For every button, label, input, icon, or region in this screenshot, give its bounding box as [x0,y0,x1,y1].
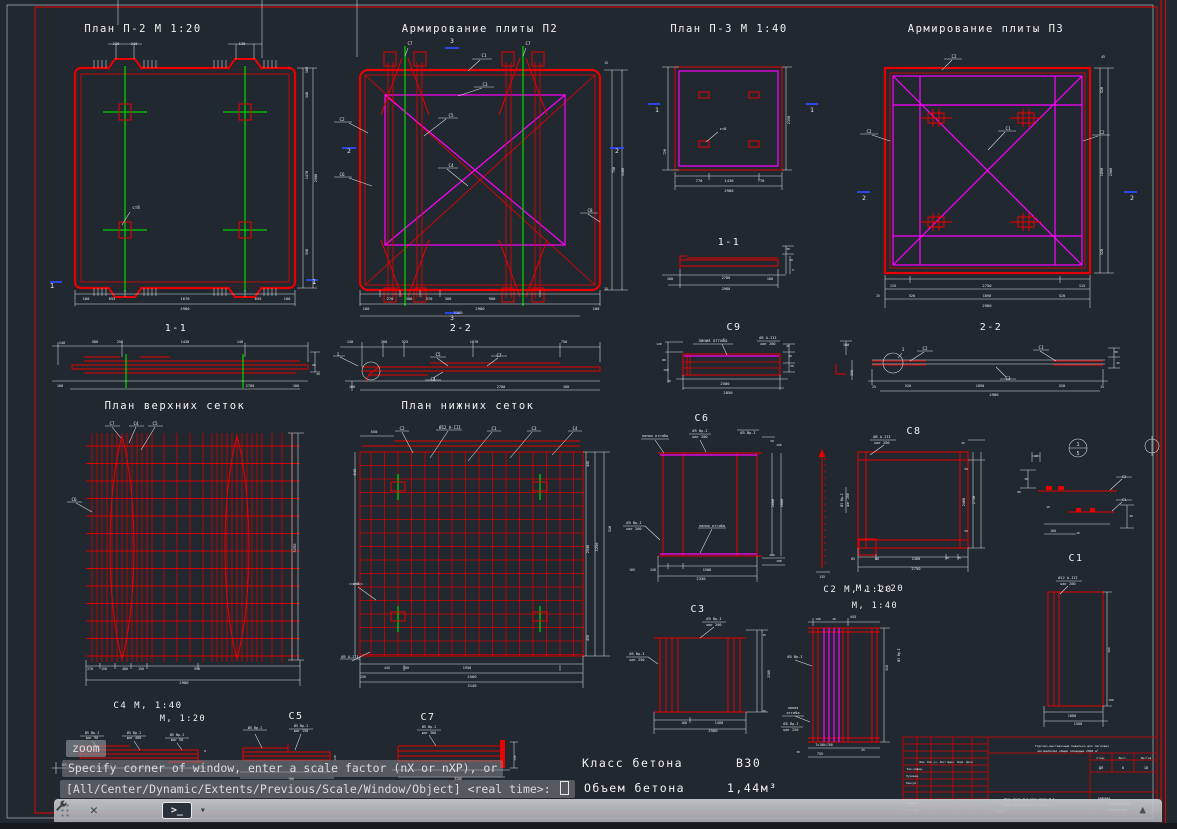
dim-label: 1430 [181,340,189,344]
dim-label: C3 [1005,376,1011,381]
section-2-2-p3: 2-2 [836,322,1120,391]
concrete-volume-label: Объем бетона [584,781,685,795]
dim-label: 2750 [982,283,992,288]
dim-label: 300 [406,296,414,301]
dim-label: C1 [491,426,497,431]
dim-label: 25 [872,385,876,389]
dim-label: 2780 [246,384,254,388]
bottom-strip [0,823,1177,829]
dim-label: 140 [237,340,243,344]
dim-label: 655 [255,296,262,301]
dim-label: 40 [832,617,836,621]
dim-label: 520 [1059,384,1065,388]
expand-triangle-icon[interactable]: ▲ [1139,803,1146,816]
dim-label: 100 [1050,529,1056,533]
dim-label: C4 [448,163,454,168]
dim-label: 150 [663,368,669,372]
dim-label: 15 [1046,505,1050,509]
title-plan-p3: План П-3 М 1:40 [670,23,787,35]
wrench-glyph [54,799,68,813]
dim-label: шаг 150 [294,729,308,733]
dim-label: 250 [117,340,123,344]
title-c2-scale: М, 1:40 [852,601,898,611]
dim-label: 8 [204,749,206,753]
dim-label: 2380 [767,670,771,678]
dim-label: 3180 [453,310,463,315]
dim-label: 50 [964,529,968,533]
dim-label: 550 [371,429,379,434]
dim-label: C1 [1038,345,1044,350]
dim-label: 2980 [982,303,992,308]
dim-label: C2 [399,426,405,431]
title-c5: C5 [288,711,303,722]
concrete-volume-value: 1,44м³ [727,781,778,795]
dim-label: Ø5 А-III [341,654,358,659]
dim-label: Ø5 Вр-I [896,648,901,662]
dim-label: 2560 [708,728,718,733]
dim-label: 950 [194,667,200,671]
dim-label: C6 [71,497,77,502]
dim-label: 2800 [780,499,784,507]
dim-label: 100 [57,384,63,388]
dim-label: Ø5 Вр-I [787,654,802,659]
dim-label: 2980 [475,306,485,311]
dim-label: 25 [961,441,965,445]
dim-label: 10 [1034,454,1038,458]
dim-label: 2 [615,147,619,155]
dim-label: 2560 [467,674,477,679]
dim-label: 50 [770,439,774,443]
dim-label: 2750 [911,566,921,571]
dim-label: 100 [293,384,299,388]
dim-label: 640 [352,468,357,476]
sheets-header: Листов [1141,756,1152,760]
dim-label: 2850 [723,390,733,395]
dim-label: 15 [604,287,608,291]
dim-label: 445 [850,615,856,619]
dim-label: шаг 300 [422,731,436,735]
dim-label: C1 [1005,126,1011,131]
dim-label: 115 [1079,284,1085,288]
dim-label: шаг 200 [706,623,721,627]
command-input-line[interactable]: [All/Center/Dynamic/Extents/Previous/Sca… [60,780,575,798]
dim-label: 2980 [722,287,730,291]
dim-label: ст8 [132,205,140,210]
dim-label: шаг 200 [626,527,641,531]
dim-label: 7х100=700 [815,743,832,747]
dim-label: 2980 [724,188,734,193]
dim-label: 100 [363,306,371,311]
dim-label: 135 [819,575,825,579]
close-icon[interactable]: ✕ [90,801,98,821]
dim-label: 2980 [989,392,999,397]
dim-label: 120 [656,342,662,346]
command-prompt-text: Specify corner of window, enter a scale … [68,761,497,775]
dim-label: 85 [851,557,855,561]
dim-label: C7 [496,353,502,358]
dim-label: 80 [662,358,666,362]
title-c2: C2 М, 1:20 [823,585,892,595]
dim-label: 100 [667,277,673,281]
dim-label: Ø5 Вр-I [783,721,798,726]
dim-label: 370 [426,296,434,301]
dim-label: 520 [885,665,889,671]
dim-label: 30 [316,372,320,376]
dim-label: C5 [448,113,454,118]
dim-label: 1430 [724,178,734,183]
dim-label: 25 [957,556,961,560]
dim-label: 100 [776,443,782,447]
dim-label: 655 [109,296,116,301]
dim-label: 45 [786,344,790,348]
dim-label: 450 [586,635,590,641]
dim-label: 1400 [715,721,723,725]
title-c4-scale1: C4 М, 1:40 [113,701,182,711]
title-mesh-lower: План нижних сеток [402,400,535,412]
dim-label: 5 [792,268,794,272]
dim-label: 30 [796,750,800,754]
dim-label: 150 [138,667,144,671]
dim-label: 2780 [722,276,730,280]
dim-label: 2980 [179,680,189,685]
dim-label: 520 [1100,249,1104,255]
dim-label: 100 [1108,698,1114,702]
dim-label: шаг 200 [874,441,889,445]
dim-label: 3250 [292,543,297,553]
section-1-1-p2: 1-1 [52,323,320,389]
dim-label: 2330 [696,576,706,581]
dim-label: Ø5 Вр-I [422,724,436,729]
detail-c6: C6 [623,413,830,582]
title-sec22-p3: 2-2 [980,322,1003,333]
dim-label: 100 [815,617,821,621]
detail-c9: C9 [665,322,795,390]
dim-label: 1670 [470,340,478,344]
dim-label: шаг 200 [1060,582,1075,586]
dim-label: 50 [790,364,794,368]
dim-label: 30 [786,247,790,251]
title-sec22-mid: 2-2 [450,323,473,334]
dim-label: 520 [905,384,911,388]
dim-label: 1500 [703,568,711,572]
title-sec11-left: 1-1 [165,323,188,334]
dim-label: 250 [850,370,854,376]
dim-label: Ø12 А-III [1058,575,1077,580]
dim-label: 80 [312,363,316,367]
dim-label: 580 [92,340,98,344]
dim-label: 2980 [314,174,318,182]
detail-c3: C3 [626,604,768,734]
dim-label: Ø8 А-III [873,434,890,439]
dim-label: 45 [1101,55,1105,59]
dim-label: 3180 [621,168,625,176]
dim-label: C4 [572,426,578,431]
dim-label: 2 [1130,194,1134,202]
dim-label: 1890 [976,384,984,388]
dim-label: 100 [284,296,292,301]
dim-label: 520 [1100,87,1104,93]
dropdown-arrow-icon[interactable]: ▾ [200,805,206,816]
dim-label: 770 [758,178,766,183]
cad-application-window: План П-2 М 1:20 Армирование плиты П2 Пла… [0,0,1177,829]
dim-label: 100 [349,385,355,389]
dim-label: Ø5 А-III [759,335,776,340]
dim-label: 100 [83,296,91,301]
dim-label: 30 [1129,514,1133,518]
dim-label: шаг 200 [846,493,850,507]
dim-label: 50 [789,258,793,262]
dim-label: C2 [339,117,345,122]
dim-label: шаг 250 [783,728,798,732]
dim-label: C3 [482,82,488,87]
title-sec11-p3: 1-1 [718,237,741,248]
dim-label: линия отгиба [699,523,725,528]
dim-label: 200 [403,666,409,670]
dim-label: 250 [360,675,366,679]
dim-label: 1890 [983,294,991,298]
title-c4-scale2: М, 1:20 [160,714,206,724]
dim-label: C7 [525,41,531,46]
dim-label: 15 [1100,385,1104,389]
dim-label: 50 [945,556,949,560]
dim-label: шаг 200 [760,342,775,346]
dim-label: 240 [131,41,139,46]
dim-label: ст8 [353,581,361,586]
dim-label: C2 [1099,130,1105,135]
dim-label: 105 [629,568,635,572]
dim-label: 3 [450,37,454,45]
dim-label: 15 [604,61,608,65]
title-c3: C3 [690,604,705,615]
command-history-entry: zoom [66,740,106,757]
sheet-value: 6 [1122,766,1124,770]
dim-label: Ø5 Вр-I [626,520,641,525]
stage-header: Стад. [1096,756,1105,760]
dim-label: 300 [1107,647,1111,653]
dim-label: 50 [667,379,671,383]
title-arm-p2: Армирование плиты П2 [402,23,558,35]
dim-label: 1 [902,347,905,353]
dim-label: 270 [387,296,395,301]
dim-label: 720 [663,149,667,155]
dim-label: 30 [1024,477,1028,481]
dim-label: 525 [402,340,408,344]
dim-label: 200 [381,340,387,344]
dim-label: 45 [1116,361,1120,365]
dim-label: Руковод. [906,774,920,778]
stage-value: ДП [1099,766,1103,770]
dim-label: 250 [769,553,775,557]
dim-label: 3140 [467,683,477,688]
dim-label: 150 [101,667,107,671]
project-title-line2: автомобилей общей площадью 2000 м² [1037,748,1099,753]
dim-label: 5 [1076,451,1079,457]
detail-node-1-5 [1020,436,1159,534]
dim-label: 1890 [1100,168,1104,176]
title-c1: C1 [1068,553,1083,564]
dim-label: 1080 [1068,714,1076,718]
command-window-icon[interactable]: >_ [162,802,192,819]
dim-label: 350 [305,249,309,255]
dim-label: 25 [861,748,865,752]
dim-label: 25 [876,294,880,298]
dim-label: ст8 [720,126,728,131]
dim-label: 2400 [912,557,920,561]
plan-p2-drawing: План П-2 М 1:20 [50,23,318,306]
dim-label: C4 [133,421,139,426]
dim-label: 100 [767,277,773,281]
dim-label: 270 [87,667,93,671]
dim-label: 2600 [771,499,775,507]
dim-label: 750 [561,340,567,344]
dim-label: C2 [951,54,957,59]
arm-p3-drawing: Армирование плиты П3 [857,23,1137,308]
dim-label: 15 [762,633,766,637]
dim-label: C8 [587,208,593,213]
title-plan-p2: План П-2 М 1:20 [84,23,201,35]
dim-label: C7 [407,41,413,46]
dim-label: C5 [152,421,158,426]
dim-label: 2540 [586,545,590,553]
dim-label: C2 [866,129,872,134]
dim-label: C7 [109,421,115,426]
dim-label: Ø5 Вр-I [170,732,184,737]
title-arm-p3: Армирование плиты П3 [908,23,1064,35]
dim-label: 520 [909,294,915,298]
dim-label: C3 [531,426,537,431]
dim-label: 510 [608,526,612,532]
dim-label: 1950 [463,666,471,670]
command-options-text: [All/Center/Dynamic/Extents/Previous/Sca… [66,782,558,796]
dim-label: 520 [1059,294,1065,298]
dim-label: 340 [305,92,309,98]
dim-label: 40 [788,354,792,358]
dim-label: 3 [450,314,454,322]
dim-label: линия [788,706,799,710]
command-prompt-line: Specify corner of window, enter a scale … [62,760,503,777]
dim-label: линия отгиба [642,433,668,438]
dim-label: 115 [890,284,896,288]
dim-label: Ø5 Вр-I [839,493,844,507]
dim-label: 80 [875,557,879,561]
title-c6: C6 [694,413,709,424]
dim-label: 100 [843,343,849,347]
dim-label: линия отгиба [699,338,728,343]
dim-label: Ø5 Вр-I [85,730,99,735]
dim-label: 1500 [1074,722,1082,726]
dim-label: 2780 [497,385,505,389]
title-c7: C7 [420,712,435,723]
dim-label: Консул. [906,781,918,785]
dim-label: шаг 250 [629,658,644,662]
section-1-1-p3: 1-1 [662,237,794,288]
dim-label: 750 [612,167,616,173]
dim-label: 15 [1076,531,1080,535]
dim-label: 230 [113,41,121,46]
concrete-class-label: Класс бетона [582,756,683,770]
dim-label: 900 [489,296,497,301]
title-c8: C8 [906,426,921,437]
title-mesh-upper: План верхних сеток [105,400,246,412]
dim-label: 140 [59,341,65,345]
dim-label: 1 [50,282,54,290]
mesh-upper-drawing: План верхних сеток C4 М, 1:40 М, 1:20 [67,400,304,724]
dim-label: C1 [481,53,487,58]
dim-label: 1 [810,106,814,114]
dim-label: Ø12 А-III [439,425,461,430]
dim-label: 2400 [962,498,966,506]
dim-label: отгиба [787,710,800,715]
command-entered-text: zoom [72,741,100,755]
dim-label: Ø5 Вр-I [248,725,262,730]
dim-label: Ø5 Вр-I [294,723,308,728]
dim-label: 80 [1017,490,1021,494]
dim-label: 770 [696,178,704,183]
dim-label: Ø5 Вр-I [692,428,707,433]
dim-label: 1470 [305,171,309,179]
dim-label: 1670 [180,296,190,301]
mesh-lower-drawing: План нижних сеток [340,400,610,688]
concrete-class-value: В30 [736,756,761,770]
dim-label: 130 [239,41,247,46]
dim-label: 1 [1076,442,1079,448]
dim-label: 2 [862,194,866,202]
project-title-line1: Торгово-выставочный павильон для легковы… [1035,744,1109,748]
dim-label: 135 [513,755,517,761]
dim-label: Ø5 Вр-I [740,430,755,435]
dim-label: 1 [337,352,340,358]
dim-label: 2980 [180,306,190,311]
dim-label: Ø5 Вр-I [706,616,721,621]
sheets-value: 18 [1144,766,1148,770]
dim-label: C5 [435,352,441,357]
dim-label: C6 [339,172,345,177]
concrete-notes: Класс бетона В30 Объем бетона 1,44м³ [582,756,778,795]
dimension-annotations: 23024013011ст810065516706551002980160340… [50,37,1134,813]
dim-label: 100 [563,385,569,389]
dim-label: шаг 200 [692,435,707,439]
dim-label: 2750 [972,496,976,504]
dim-label: 755 [817,752,823,756]
command-bar[interactable]: ✕ >_ ▾ ▲ [54,799,1162,822]
detail-c1: C1 [1044,553,1112,727]
dim-label: 480 [122,667,128,671]
dim-label: Ø5 Вр-I [127,730,141,735]
dim-label: 140 [347,340,353,344]
dim-label: C4 [430,377,436,382]
text-cursor [560,781,569,795]
dim-label: 1 [655,106,659,114]
dim-label: C2 [1122,474,1127,479]
command-window-glyph: >_ [171,805,183,816]
dim-label: 50 [1114,350,1118,354]
dim-label: шаг 50 [171,738,183,742]
arm-p2-drawing: Армирование плиты П2 [334,23,628,313]
title-c9: C9 [726,322,741,333]
dim-label: 240 [650,568,656,572]
dim-label: шаг 400 [127,736,141,740]
dim-label: 160 [305,67,309,73]
drawing-canvas[interactable]: План П-2 М 1:20 Армирование плиты П2 Пла… [0,0,1177,829]
dim-label: C1 [1122,497,1127,502]
dim-label: 15 [762,709,766,713]
dim-label: 440 [586,461,590,467]
dim-label: 180 [681,721,687,725]
dim-label: Зав.кафед. [907,767,924,771]
dim-label: 2 [347,147,351,155]
dim-label: 445 [384,666,390,670]
dim-label: C2 [922,346,928,351]
